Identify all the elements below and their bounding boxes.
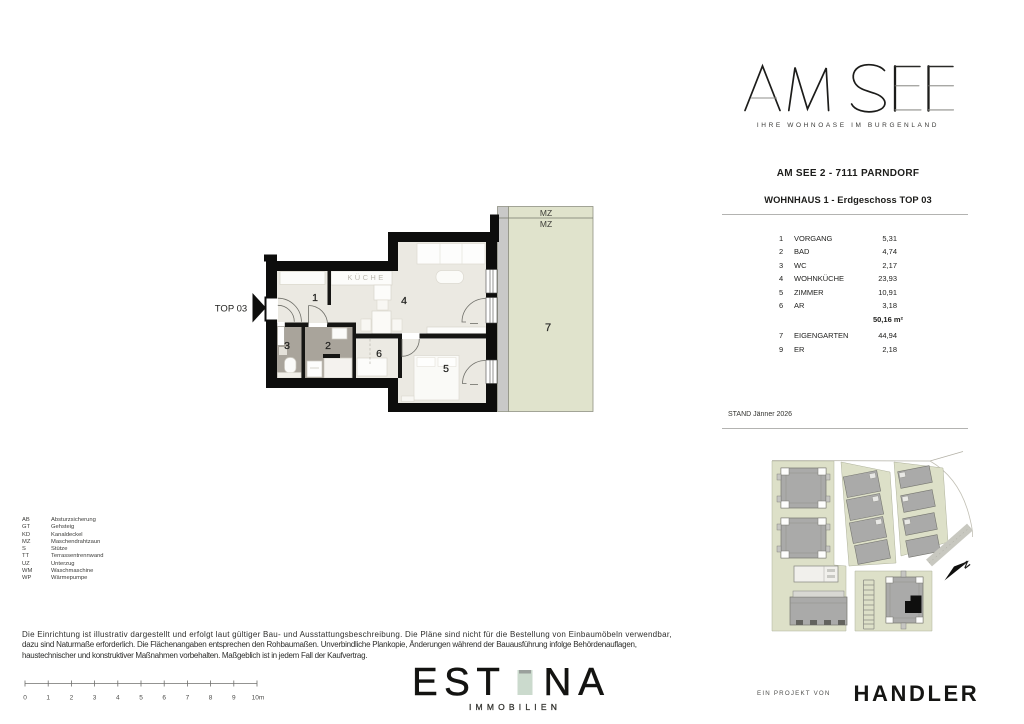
svg-text:10m: 10m	[252, 695, 265, 702]
svg-text:0: 0	[23, 695, 27, 702]
svg-text:2: 2	[325, 340, 331, 352]
svg-text:6: 6	[162, 695, 166, 702]
svg-text:MZ: MZ	[540, 208, 552, 218]
svg-text:5: 5	[139, 695, 143, 702]
svg-text:1: 1	[312, 292, 318, 304]
svg-text:6: 6	[376, 348, 382, 360]
svg-text:KÜCHE: KÜCHE	[347, 273, 385, 282]
svg-text:5: 5	[443, 363, 449, 375]
svg-text:2: 2	[70, 695, 74, 702]
svg-text:4: 4	[401, 295, 407, 307]
svg-text:TOP 03: TOP 03	[215, 304, 247, 315]
svg-text:7: 7	[186, 695, 190, 702]
svg-text:9: 9	[232, 695, 236, 702]
svg-text:7: 7	[545, 322, 551, 334]
svg-text:4: 4	[116, 695, 120, 702]
svg-text:1: 1	[46, 695, 50, 702]
svg-text:3: 3	[93, 695, 97, 702]
svg-text:N: N	[959, 559, 972, 571]
svg-text:8: 8	[209, 695, 213, 702]
svg-text:MZ: MZ	[540, 219, 552, 229]
svg-text:3: 3	[284, 340, 290, 352]
